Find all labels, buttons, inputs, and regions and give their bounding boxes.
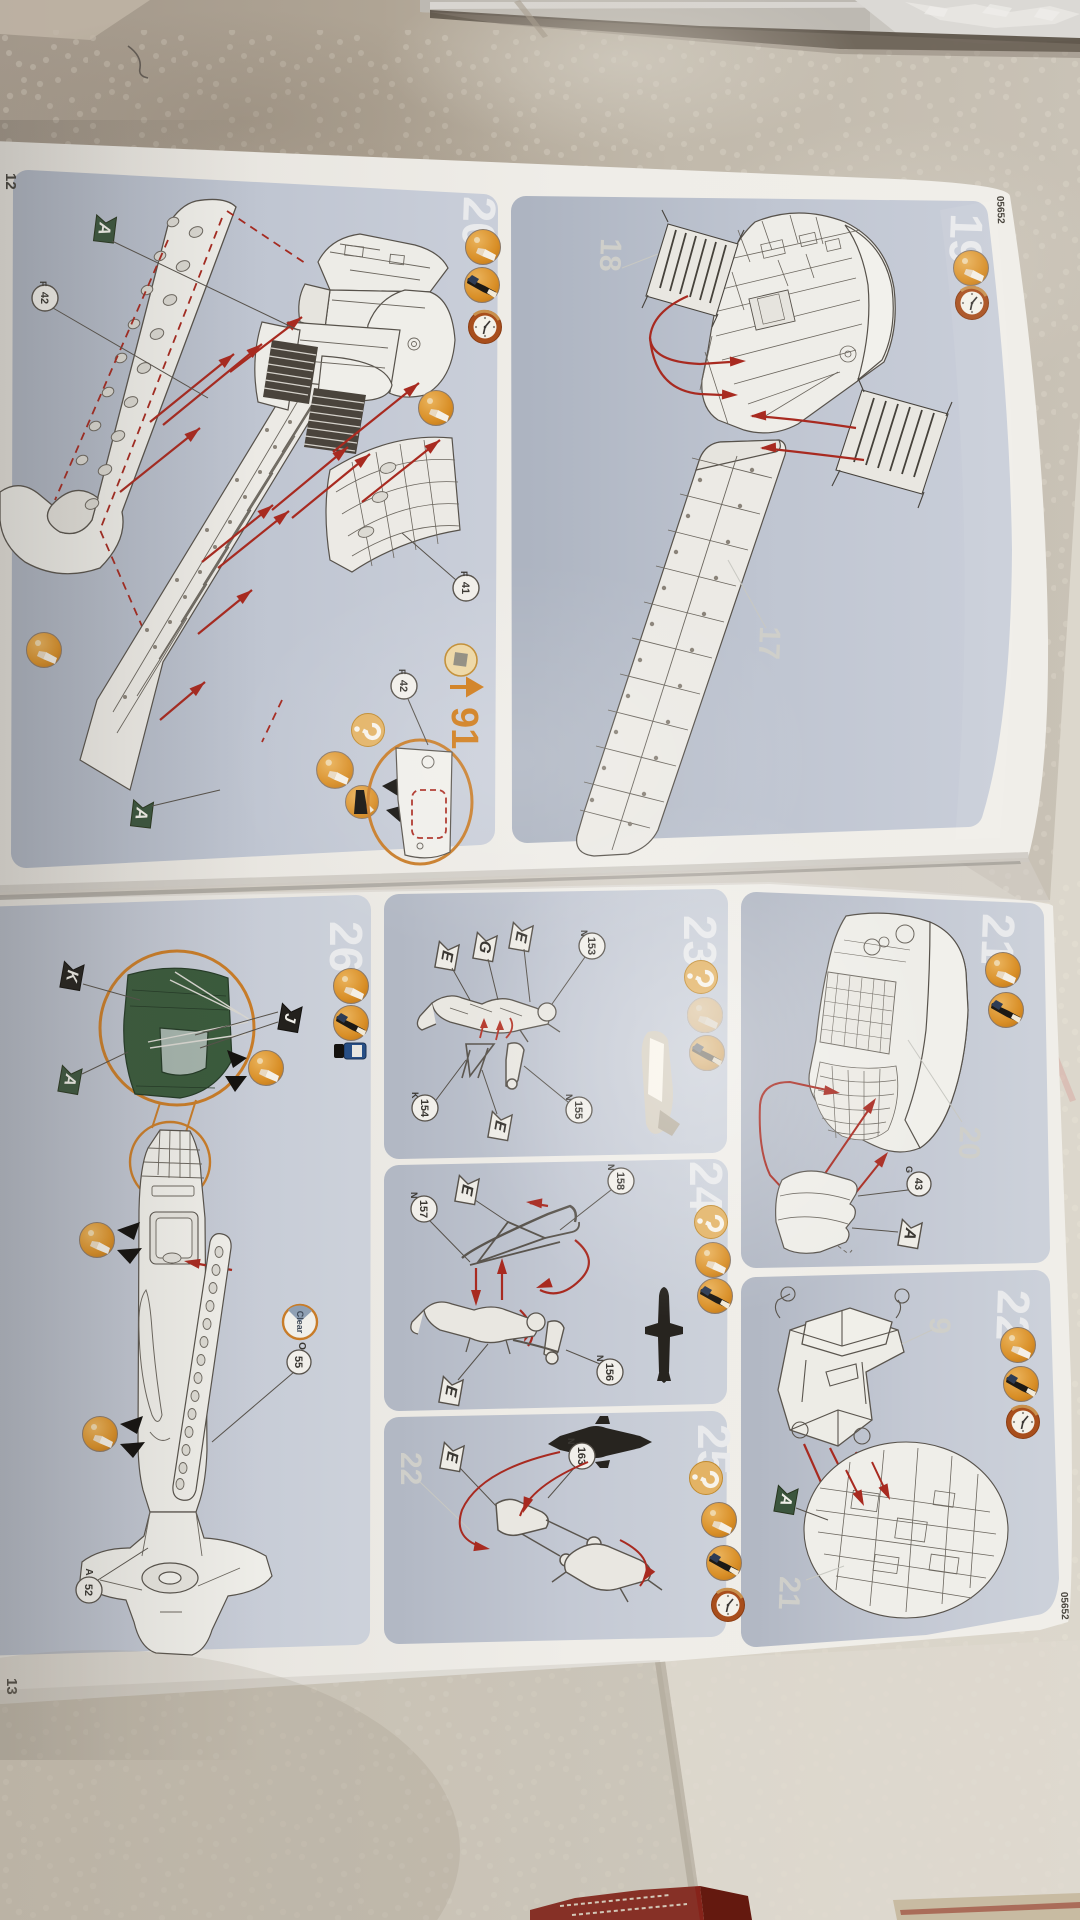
svg-text:20: 20 xyxy=(952,1126,986,1161)
svg-text:O: O xyxy=(296,1342,307,1350)
svg-text:18: 18 xyxy=(593,238,627,273)
svg-text:N: N xyxy=(566,1438,576,1445)
svg-text:55: 55 xyxy=(292,1356,304,1368)
svg-text:154: 154 xyxy=(418,1099,430,1118)
svg-text:43: 43 xyxy=(912,1178,924,1190)
svg-text:157: 157 xyxy=(417,1200,429,1218)
svg-text:05652: 05652 xyxy=(1058,1592,1070,1621)
svg-text:21: 21 xyxy=(772,1576,806,1611)
svg-text:22: 22 xyxy=(394,1452,427,1485)
svg-text:156: 156 xyxy=(603,1363,615,1381)
svg-text:Clear: Clear xyxy=(295,1311,305,1334)
